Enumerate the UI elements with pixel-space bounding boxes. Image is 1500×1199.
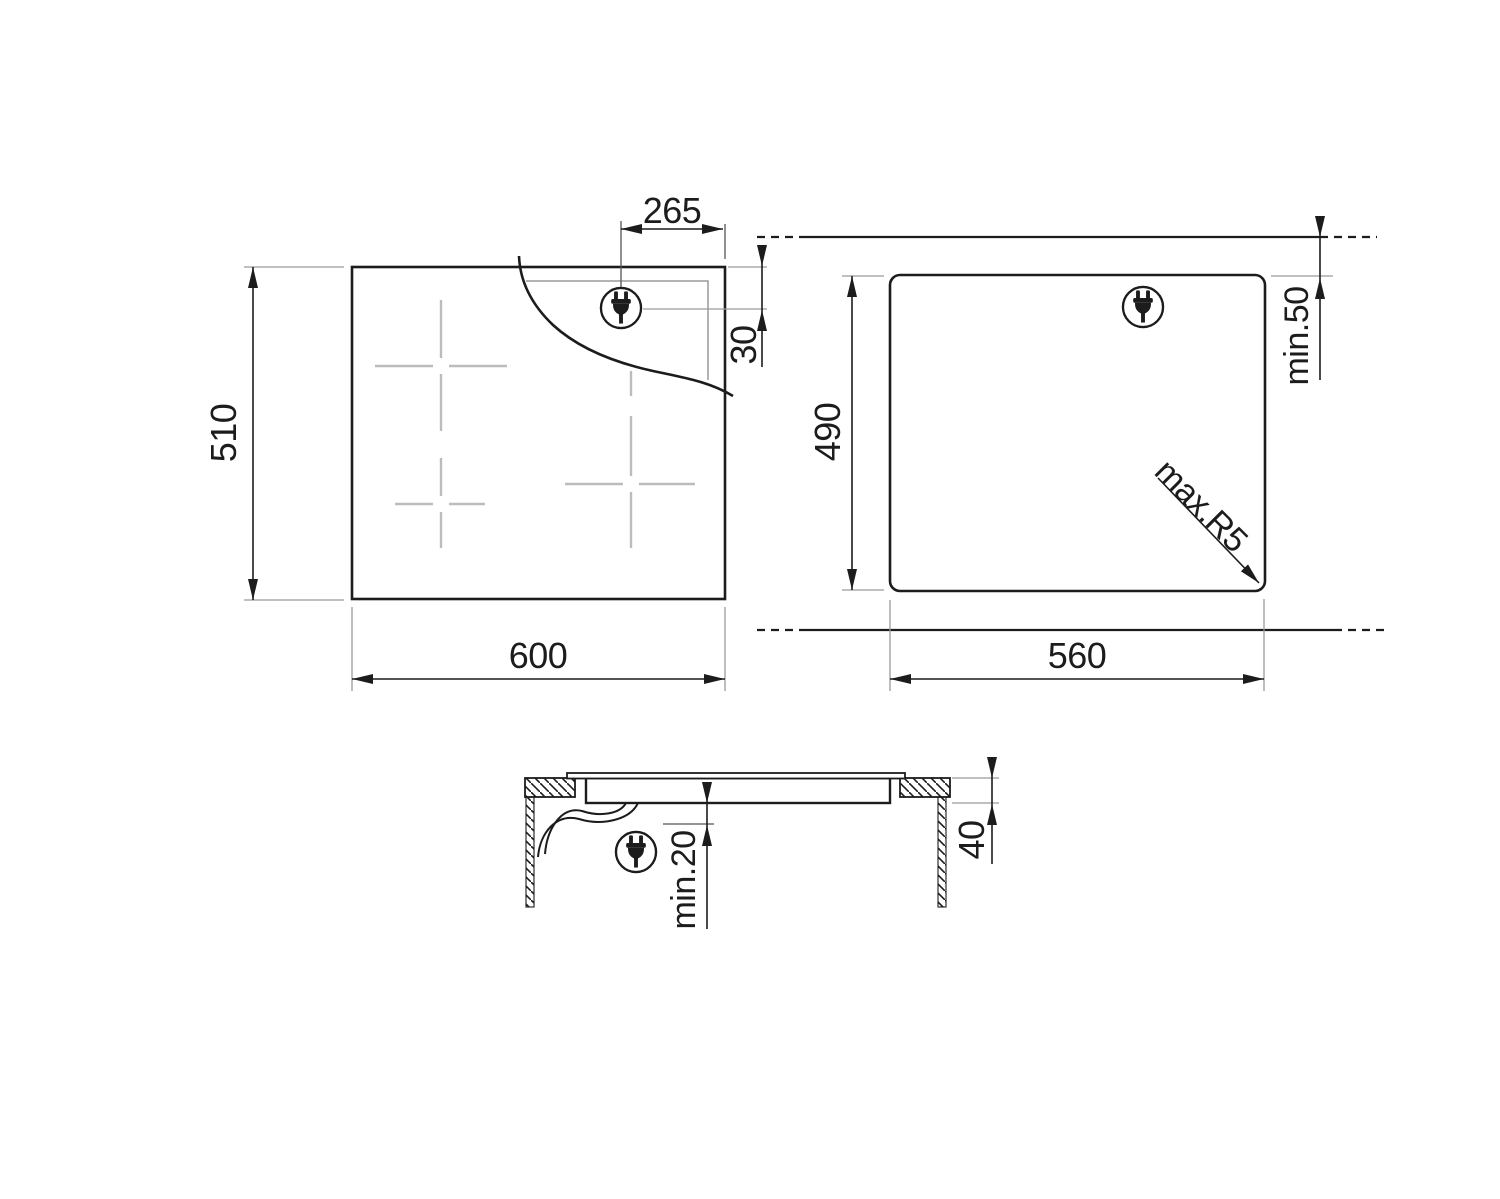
cabinet-panel-left — [526, 797, 534, 907]
worktop-section-left — [525, 778, 575, 797]
cutout-outline — [890, 275, 1265, 591]
dim-label-265: 265 — [643, 193, 702, 229]
dim-label-min50: min.50 — [1280, 286, 1314, 385]
power-plug-icon — [601, 288, 641, 328]
power-plug-icon — [616, 832, 656, 872]
hob-outline — [352, 267, 725, 599]
dim-label-510: 510 — [206, 404, 242, 463]
power-plug-icon — [1123, 287, 1163, 327]
dim-label-30: 30 — [726, 325, 762, 364]
dim-label-600: 600 — [509, 638, 568, 674]
dim-label-min20: min.20 — [667, 830, 701, 929]
hob-glass-section — [567, 773, 905, 779]
worktop-section-right — [900, 778, 950, 797]
installation-drawing: 265 30 510 600 490 560 min.50 max.R5 min… — [0, 0, 1500, 1199]
side-view — [525, 763, 999, 929]
dim-label-490: 490 — [810, 403, 846, 462]
dim-label-560: 560 — [1048, 638, 1107, 674]
supply-cable — [545, 803, 626, 854]
dim-label-40: 40 — [954, 820, 990, 859]
hob-body-section — [586, 778, 890, 803]
drawing-linework — [0, 0, 1500, 1199]
cabinet-panel-right — [938, 797, 946, 907]
top-view — [244, 221, 767, 691]
